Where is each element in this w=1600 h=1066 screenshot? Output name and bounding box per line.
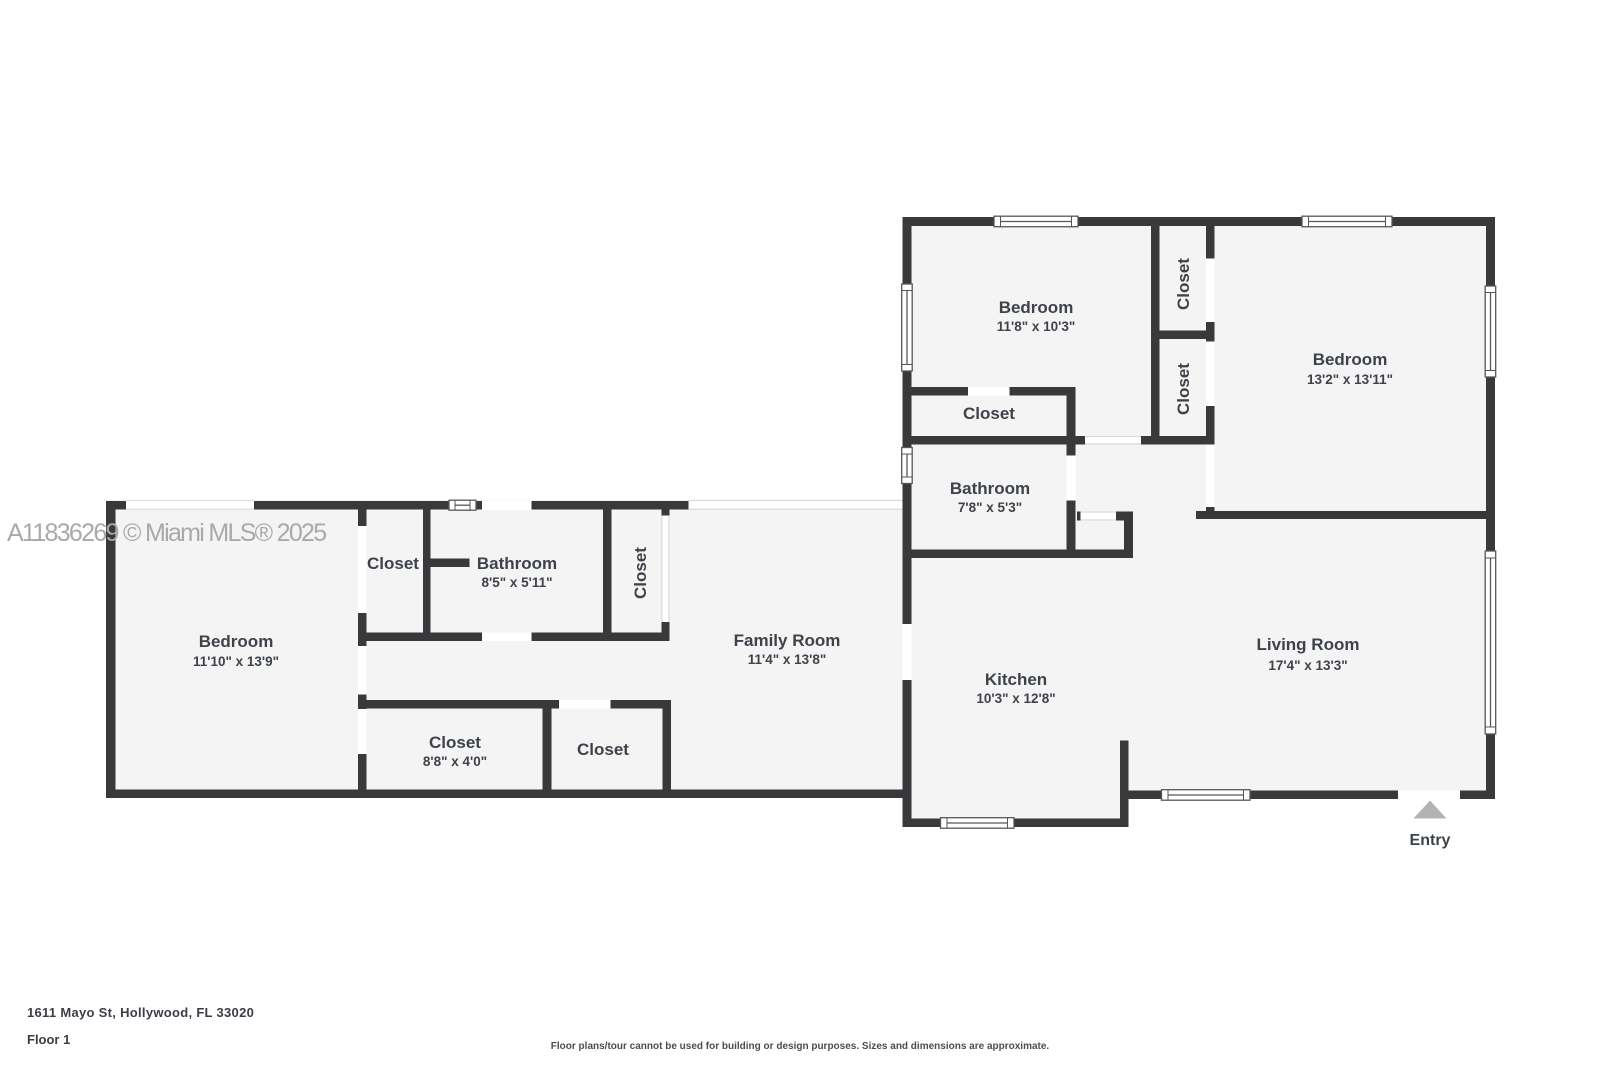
- svg-text:7'8" x 5'3": 7'8" x 5'3": [958, 500, 1022, 515]
- svg-text:Bathroom: Bathroom: [950, 479, 1030, 498]
- svg-text:Floor 1: Floor 1: [27, 1032, 70, 1047]
- svg-text:11'8" x 10'3": 11'8" x 10'3": [997, 319, 1076, 334]
- svg-text:Closet: Closet: [1174, 258, 1193, 310]
- svg-text:8'8" x 4'0": 8'8" x 4'0": [423, 754, 487, 769]
- svg-text:Bedroom: Bedroom: [999, 298, 1074, 317]
- svg-text:Entry: Entry: [1410, 832, 1451, 849]
- svg-text:11'10" x 13'9": 11'10" x 13'9": [193, 654, 279, 669]
- svg-text:Kitchen: Kitchen: [985, 670, 1047, 689]
- svg-text:Family Room: Family Room: [734, 631, 841, 650]
- svg-text:1611 Mayo St, Hollywood, FL 33: 1611 Mayo St, Hollywood, FL 33020: [27, 1005, 254, 1020]
- svg-text:Closet: Closet: [1174, 363, 1193, 415]
- svg-text:Bedroom: Bedroom: [1313, 350, 1388, 369]
- svg-text:Closet: Closet: [631, 547, 650, 599]
- svg-text:8'5" x 5'11": 8'5" x 5'11": [481, 575, 552, 590]
- svg-text:17'4" x 13'3": 17'4" x 13'3": [1268, 658, 1347, 673]
- svg-text:13'2" x 13'11": 13'2" x 13'11": [1307, 372, 1393, 387]
- svg-text:Closet: Closet: [963, 404, 1015, 423]
- svg-text:Floor plans/tour cannot be use: Floor plans/tour cannot be used for buil…: [551, 1041, 1050, 1052]
- svg-text:Bathroom: Bathroom: [477, 554, 557, 573]
- svg-text:Living Room: Living Room: [1257, 635, 1360, 654]
- svg-text:Closet: Closet: [429, 733, 481, 752]
- svg-text:Closet: Closet: [577, 740, 629, 759]
- svg-text:A11836269 © Miami MLS® 2025: A11836269 © Miami MLS® 2025: [7, 519, 326, 547]
- svg-text:10'3" x 12'8": 10'3" x 12'8": [976, 691, 1055, 706]
- svg-text:Closet: Closet: [367, 554, 419, 573]
- svg-text:Bedroom: Bedroom: [199, 632, 274, 651]
- svg-text:11'4" x 13'8": 11'4" x 13'8": [748, 652, 827, 667]
